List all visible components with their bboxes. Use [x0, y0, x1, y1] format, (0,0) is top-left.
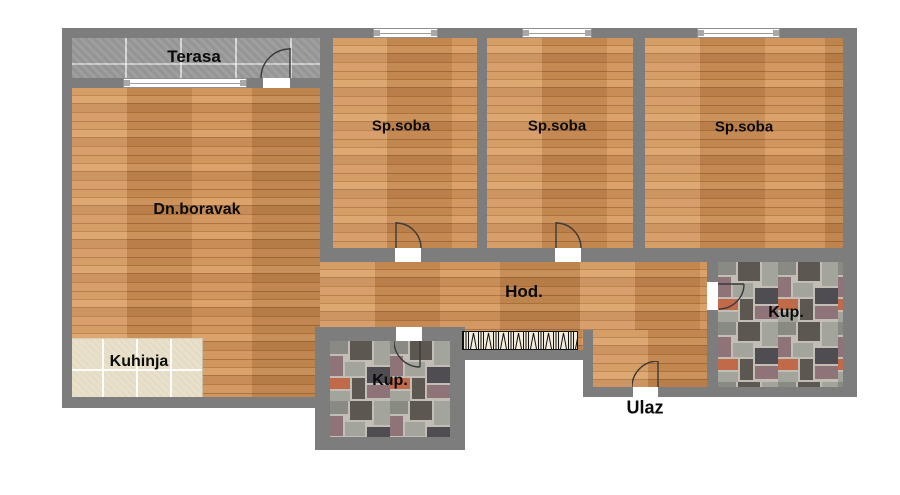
room-label-kupatilo-1: Kup. [372, 372, 408, 390]
room-label-dn-boravak: Dn.boravak [153, 201, 240, 219]
door-gap-bath2 [707, 282, 718, 310]
wall-living-bottom [62, 397, 330, 408]
door-arc-bedroom1 [395, 222, 422, 249]
bedroom-2-floor [487, 38, 633, 248]
door-arc-entrance [632, 361, 659, 388]
wall-right [843, 28, 857, 397]
room-label-sp-soba-2: Sp.soba [528, 118, 586, 135]
wall-bedroom1-bedroom2 [477, 38, 487, 248]
wall-bath1-left [315, 327, 330, 450]
door-gap-bedroom1 [395, 248, 421, 262]
wall-left [62, 28, 72, 408]
bedroom-3-floor [645, 38, 843, 250]
wall-bath1-top [315, 327, 465, 341]
wall-bedroom2-bedroom3 [633, 38, 645, 250]
wall-wardrobe-bottom [450, 350, 583, 360]
door-arc-terrace [260, 48, 292, 80]
window-bedroom3 [697, 28, 780, 38]
door-gap-bath1 [396, 327, 422, 341]
floorplan-canvas: Terasa Sp.soba Sp.soba Sp.soba Dn.borava… [0, 0, 900, 495]
door-gap-bedroom2 [555, 248, 581, 262]
wall-entrance-bottom [583, 387, 857, 397]
room-label-kuhinja: Kuhinja [110, 353, 169, 371]
wardrobe-symbol [462, 331, 578, 350]
bedroom-1-floor [332, 38, 477, 248]
window-bedroom2 [522, 28, 592, 38]
door-arc-bath1 [394, 341, 421, 368]
room-label-sp-soba-3: Sp.soba [715, 119, 773, 136]
room-label-terasa: Terasa [167, 47, 221, 67]
bathroom-2-floor [718, 262, 843, 387]
window-terrace [123, 78, 247, 88]
room-label-ulaz: Ulaz [626, 398, 663, 419]
window-bedroom1 [373, 28, 438, 38]
door-arc-bath2 [718, 283, 745, 310]
door-arc-bedroom2 [555, 222, 582, 249]
wall-bath1-bottom [315, 437, 465, 450]
room-label-kupatilo-2: Kup. [768, 304, 804, 322]
room-label-hodnik: Hod. [505, 282, 543, 302]
room-label-sp-soba-1: Sp.soba [372, 118, 430, 135]
door-gap-entrance [633, 387, 658, 397]
wall-living-bedroom1 [320, 38, 333, 260]
